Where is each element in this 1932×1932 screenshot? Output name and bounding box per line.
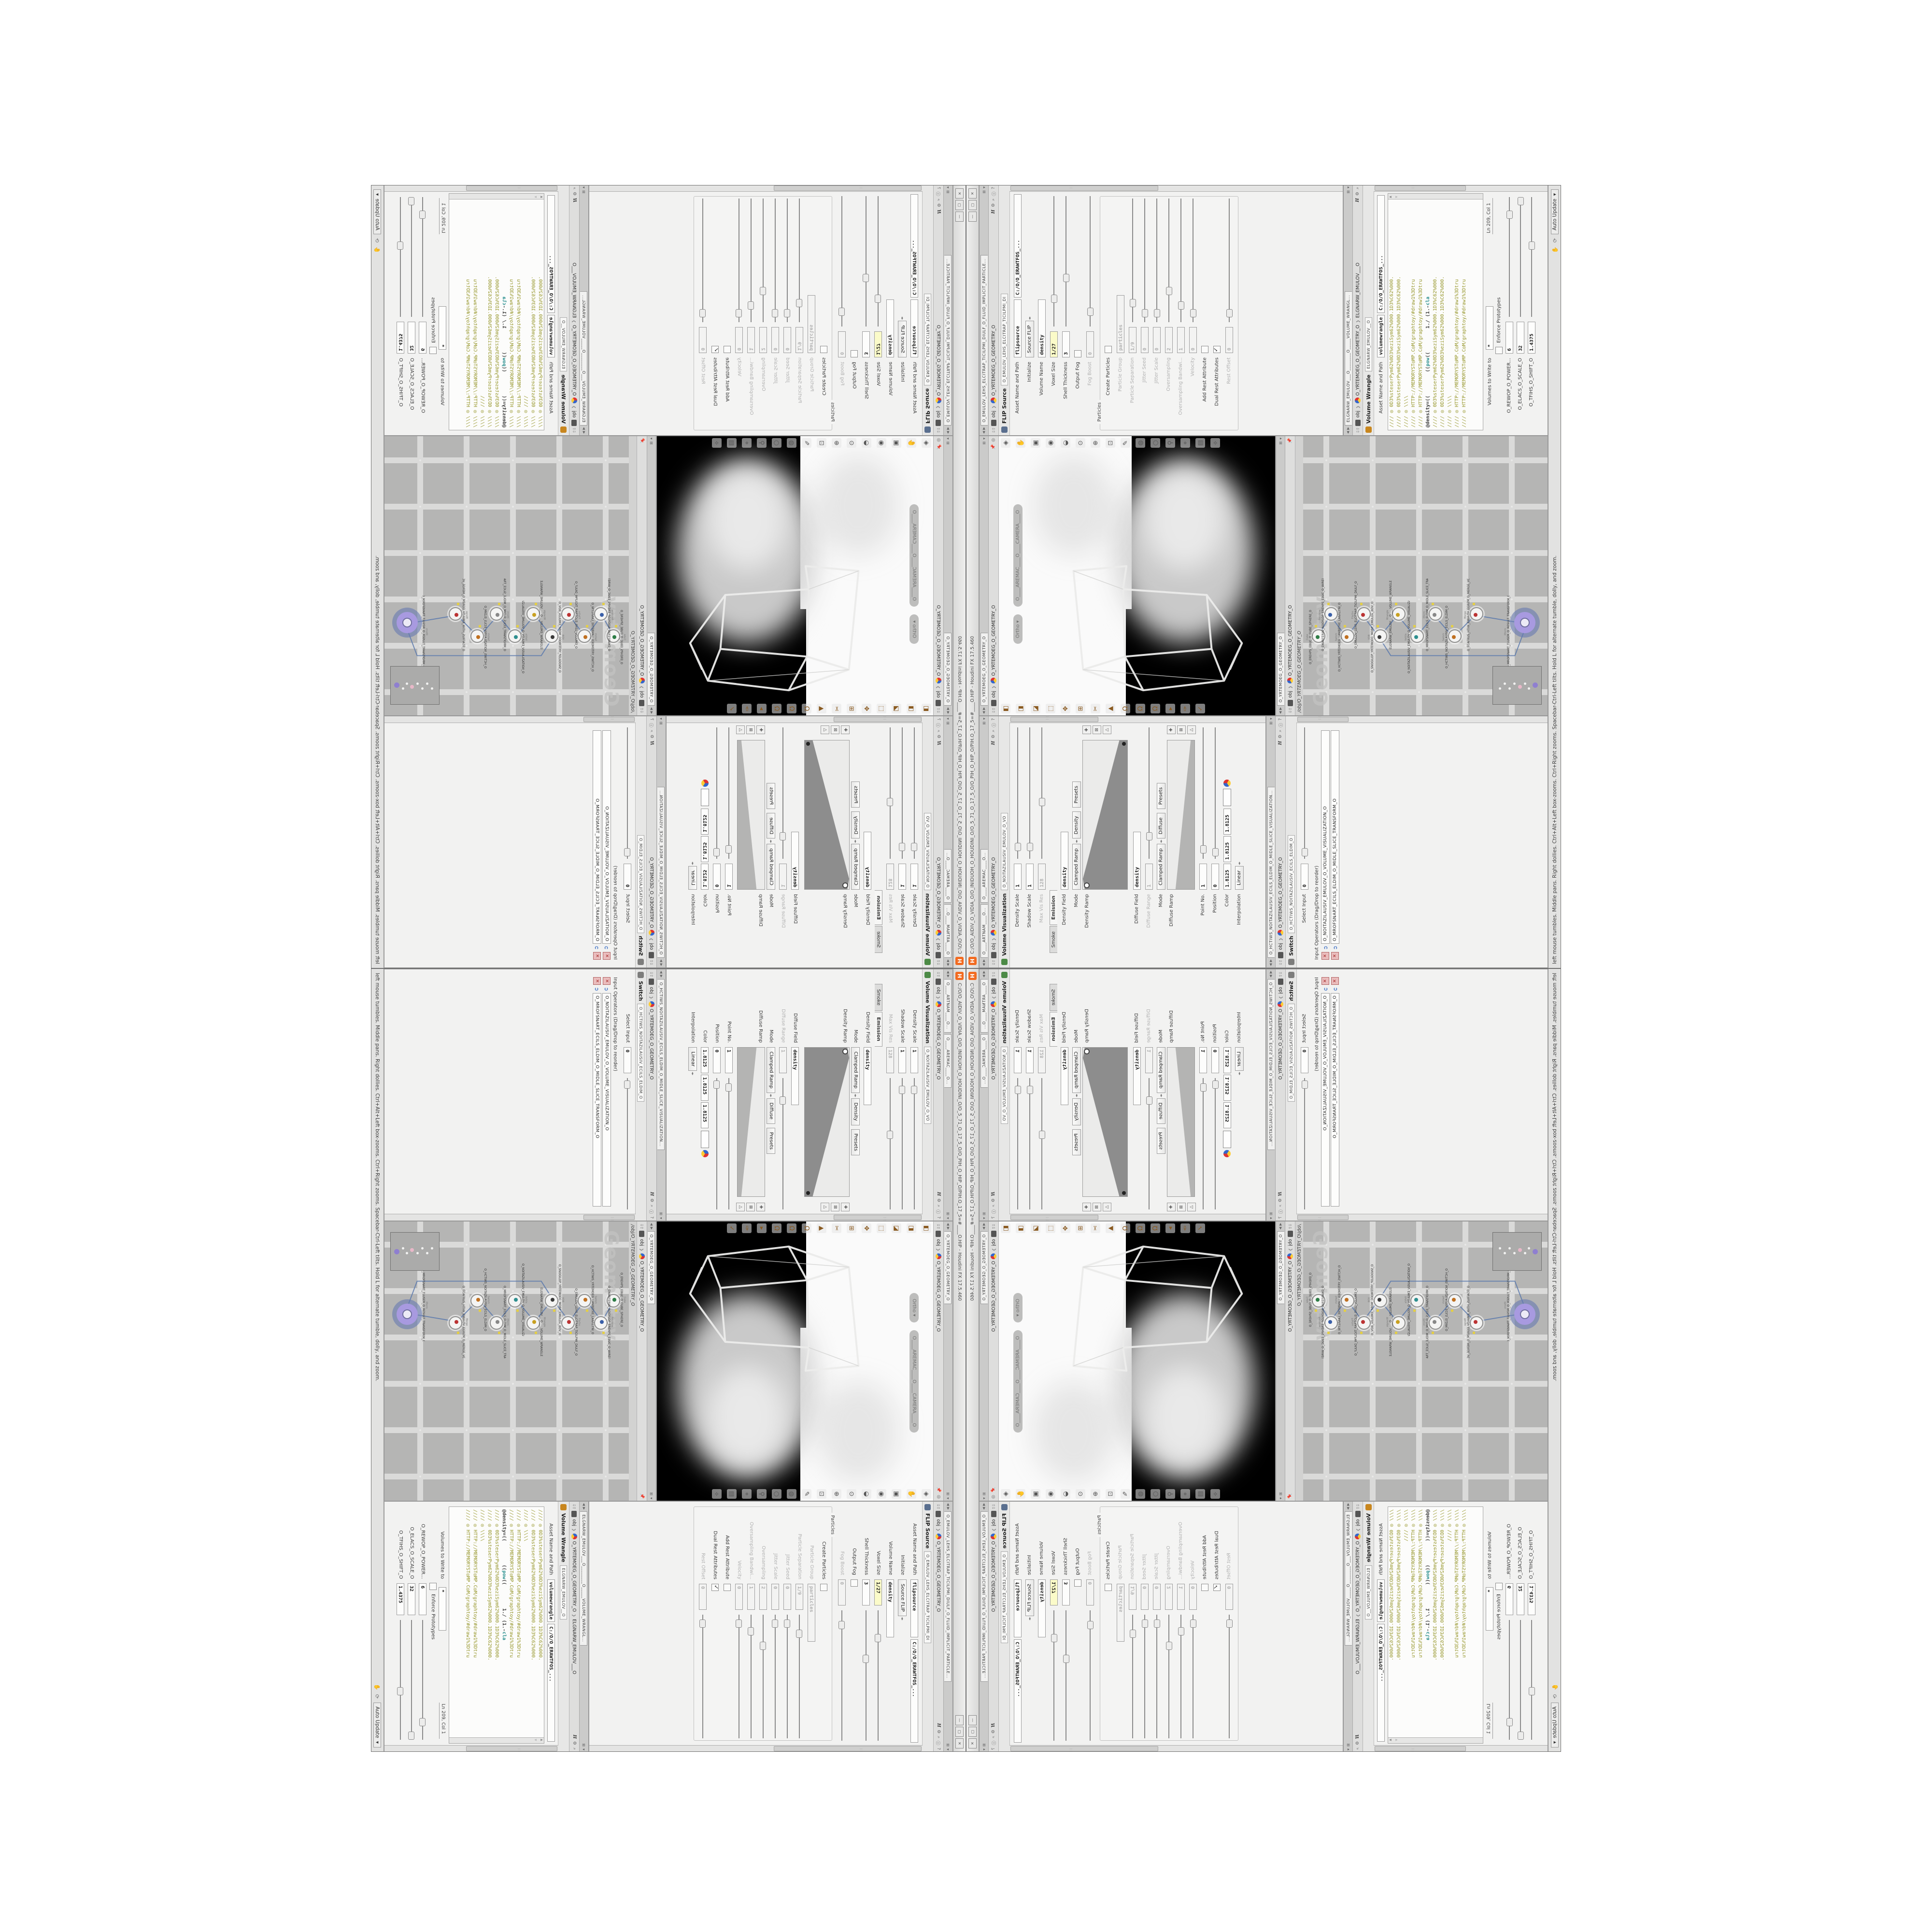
interpolation-dropdown[interactable]: Linear [1235, 866, 1244, 890]
nav-arrows-icon[interactable]: ⇩⇧ [1288, 708, 1293, 713]
pane-split-icon[interactable]: ⊞ [659, 1212, 664, 1215]
clip-icon[interactable]: ✂ [1091, 704, 1100, 713]
particle-separation-field[interactable]: 1/9 [796, 1584, 804, 1610]
pose-icon[interactable]: ⟡ [1210, 438, 1220, 448]
max-vis-res-slider[interactable] [1038, 727, 1045, 859]
node-name-tab[interactable]: O_EMULOV_LEHS_ELCITRAP_TICILPMI_DI [1001, 1551, 1008, 1643]
node-result-transform-display[interactable] [1510, 1299, 1540, 1329]
grid-icon[interactable]: ⊞ [847, 704, 856, 713]
shell-thickness-slider[interactable] [1063, 1610, 1069, 1741]
nav-arrows-icon[interactable]: ⇩⇧ [572, 428, 577, 433]
node-vdb-from-polygons[interactable] [545, 1294, 558, 1307]
minimize-button[interactable]: — [955, 1715, 964, 1725]
snapshot-icon[interactable]: ◍ [1136, 438, 1145, 448]
node-slice-transform[interactable] [1429, 607, 1442, 621]
info-icon[interactable]: ⓘ [991, 723, 997, 727]
network-path-field[interactable]: /obj/O_YRTEMOEG_O_GEOMETRY_O [628, 1222, 637, 1501]
point-no-slider[interactable] [726, 727, 733, 859]
pane-split-icon[interactable]: ⊞ [982, 1743, 986, 1747]
pane-menu-icon[interactable]: ▾ [1279, 438, 1283, 440]
pane-menu-icon[interactable]: ▾ [982, 1497, 986, 1499]
oversampling-bandwidth-field[interactable]: 1 [1177, 327, 1185, 353]
pane-tab-network[interactable]: O_YRTEMOEG_O_GEOMETRY_O [1277, 1231, 1284, 1304]
play-icon[interactable]: ▸ [1165, 704, 1175, 713]
node-name-tab[interactable]: ELGNARW_EMULOV__O [560, 1565, 568, 1620]
wireframe-icon[interactable]: ◪ [892, 1223, 901, 1233]
diffuse-mode-dropdown[interactable]: Clamped Ramp [1157, 1047, 1165, 1093]
annotate-icon[interactable]: ✎ [802, 1489, 811, 1499]
pane-tab-flip-source[interactable]: O_EMULOV_LEHS_ELCITRAP_TICILPMI_DIULF_O_… [945, 255, 952, 426]
dot-icon[interactable]: ○ [1151, 438, 1160, 448]
pane-split-icon[interactable]: ⊞ [946, 1212, 951, 1215]
rest-offset-field[interactable]: 0 [699, 327, 707, 353]
shade-icon[interactable]: ◒ [862, 1489, 871, 1499]
pin-icon[interactable]: 📌 [1288, 438, 1293, 443]
diffuse-ramp-widget[interactable] [1167, 1047, 1195, 1197]
flatten-ramp-icon[interactable]: △ [1187, 1203, 1196, 1211]
oversampling-slider[interactable] [760, 1615, 767, 1738]
nav-arrows-icon[interactable]: ⇩⇧ [992, 428, 996, 433]
code-scrollbar[interactable] [1388, 194, 1483, 199]
ortho-camera-pill[interactable]: Ortho ▾ [1013, 614, 1023, 644]
jitter-seed-field[interactable]: 0 [784, 327, 792, 353]
enforce-prototypes-checkbox[interactable] [429, 347, 437, 354]
node-name-tab[interactable]: O_HCTIWS_NOITAZILAUSIV_ECILS_ELDIM_O [638, 835, 645, 933]
breadcrumb-ctx[interactable]: obj [649, 987, 654, 994]
search-icon[interactable]: ⌕ [1355, 187, 1360, 189]
magnet-prim-icon[interactable]: Ω [1151, 704, 1160, 713]
network-canvas[interactable]: Geometry CubeO_EREHPS_EBUC_O_CUBE_SPHERE… [1303, 436, 1548, 715]
ramp-channel-dropdown[interactable]: Density [852, 1098, 860, 1125]
breadcrumb-ctx[interactable]: obj [991, 987, 996, 994]
nav-arrows-icon[interactable]: ⇩⇧ [937, 1223, 941, 1229]
pane-menu-icon[interactable]: ▾ [1269, 718, 1273, 720]
pane-scrollbar[interactable] [667, 716, 923, 723]
stepper-icon[interactable]: ◂▸ [1159, 839, 1163, 843]
view-tool-icon[interactable]: ◈ [922, 438, 931, 448]
tab-scroll-right-icon[interactable]: ▶ [1269, 975, 1273, 977]
help-icon[interactable]: ? [1278, 718, 1283, 721]
tab-scroll-right-icon[interactable]: ▶ [1279, 707, 1282, 710]
nav-arrows-icon[interactable]: ⇩⇧ [937, 708, 941, 713]
velocity-field[interactable]: 0 [736, 1584, 743, 1610]
comb-icon[interactable]: ✓ [1195, 1223, 1205, 1233]
shadow-scale-slider[interactable] [899, 1078, 906, 1209]
density-ramp-widget[interactable] [1082, 1047, 1128, 1197]
tab-scroll-right-icon[interactable]: ▶ [982, 1227, 986, 1229]
viewport-canvas[interactable]: Ortho ▾ O____AREMAC____O____CAMERA____O … [657, 436, 933, 715]
nav-arrows-icon[interactable]: ⇩⇧ [1356, 428, 1360, 433]
density-scale-slider[interactable] [911, 727, 918, 859]
select-input-slider[interactable] [625, 727, 631, 859]
vex-snippet-editor[interactable]: //// ◎ 0D3%steserPym62%0D3%eziSym62%000.… [1388, 193, 1483, 430]
rest-offset-slider[interactable] [1226, 1615, 1233, 1738]
remove-operator-button[interactable]: ✕ [603, 952, 611, 960]
axis-icon[interactable]: ▲ [1106, 704, 1115, 713]
grid-icon[interactable]: ⊞ [847, 1223, 856, 1233]
presets-button[interactable]: Presets [852, 1129, 860, 1155]
pane-scrollbar[interactable] [1009, 1745, 1343, 1752]
tab-scroll-right-icon[interactable]: ▶ [946, 707, 950, 710]
node-volume-visualization[interactable] [1410, 629, 1424, 643]
density-scale-slider[interactable] [1014, 1078, 1021, 1209]
initialize-dropdown[interactable]: Source FLIP [898, 321, 907, 357]
breadcrumb-ctx[interactable]: obj [639, 691, 645, 697]
density-scale-slider[interactable] [911, 1078, 918, 1209]
power-slider[interactable] [1506, 1620, 1513, 1740]
shift-field[interactable]: 1.4375 [1528, 1583, 1535, 1615]
target-icon[interactable]: ⌖ [742, 438, 752, 448]
volumes-to-write-field[interactable]: * [1486, 306, 1493, 350]
diffuse-range-slider[interactable] [1146, 1078, 1152, 1209]
tab-scroll-right-icon[interactable]: ▶ [1346, 427, 1350, 429]
auto-update-selector[interactable]: Auto Update ▾ [1551, 189, 1559, 234]
gear-icon[interactable]: ⚙ [991, 735, 996, 739]
info-icon[interactable]: ⓘ [1278, 723, 1284, 727]
power-field[interactable]: 6 [419, 322, 427, 354]
pane-tab-camera[interactable]: O____AREMAC____O... [980, 1034, 988, 1088]
operator-path-field[interactable]: O_NOITAZILAUSIV_EMULOV_O_VOLUME_VISUALIZ… [602, 993, 611, 1207]
breadcrumb-geometry[interactable]: O_YRTEMOEG_O_GEOMETRY_O [936, 605, 941, 676]
diffuse-mode-dropdown[interactable]: Clamped Ramp [767, 1047, 776, 1093]
search-icon[interactable]: ⌕ [936, 730, 941, 732]
gear-icon[interactable]: ⚙ [1278, 735, 1283, 739]
tab-scroll-left-icon[interactable]: ◀ [659, 964, 663, 966]
density-ramp-widget[interactable] [804, 1047, 850, 1197]
viewport-canvas[interactable]: Ortho ▾ O____AREMAC____O____CAMERA____O … [999, 436, 1275, 715]
tab-scroll-left-icon[interactable]: ◀ [946, 1503, 950, 1506]
initialize-dropdown[interactable]: Source FLIP [1025, 1579, 1034, 1616]
vex-snippet-editor[interactable]: //// ◎ 0D3%steserPym62%0D3%eziSym62%000.… [449, 1506, 544, 1744]
frame-icon[interactable]: ▣ [892, 438, 901, 448]
target-icon[interactable]: ⌖ [742, 1489, 752, 1499]
rest-offset-slider[interactable] [1226, 199, 1233, 322]
breadcrumb-ctx[interactable]: obj [1278, 987, 1283, 994]
construction-plane-icon[interactable]: ⬚ [877, 704, 886, 713]
asset-path-field[interactable]: C:/O/O_ERAWTFOS_... [911, 194, 919, 298]
gear-icon[interactable]: ⚙ [991, 1730, 996, 1733]
max-vis-res-slider[interactable] [1038, 1078, 1045, 1209]
shift-slider[interactable] [1528, 197, 1535, 317]
auto-update-selector[interactable]: Auto Update ▾ [373, 1703, 381, 1747]
minimize-button[interactable]: — [968, 212, 977, 222]
pane-tab-flip-source[interactable]: O_EMULOV_LEHS_ELCITRAP_TICILPMI_DIULF_O_… [980, 255, 988, 426]
gear-icon[interactable]: ⚙ [991, 1198, 996, 1202]
node-name-tab[interactable]: O_HCTIWS_NOITAZILAUSIV_ECILS_ELDIM_O [1288, 835, 1295, 933]
node-slice-transform[interactable] [1429, 1316, 1442, 1330]
gear-icon[interactable]: ⚙ [936, 1730, 941, 1733]
jitter-seed-field[interactable]: 0 [784, 1584, 792, 1610]
network-canvas[interactable]: Geometry CubeO_EREHPS_EBUC_O_CUBE_SPHERE… [384, 1222, 629, 1501]
voxel-size-field[interactable]: 1/27 [1050, 331, 1058, 357]
pane-split-icon[interactable]: ⊞ [1346, 190, 1350, 194]
ramp-channel-dropdown[interactable]: Density [1072, 1098, 1081, 1125]
flatten-ramp-icon[interactable]: △ [736, 1203, 745, 1211]
snapshot-icon[interactable]: ◍ [1136, 1489, 1145, 1499]
info-icon[interactable]: ⓘ [991, 192, 997, 196]
search-icon[interactable]: ⌕ [649, 730, 654, 732]
tab-scroll-left-icon[interactable]: ◀ [982, 964, 986, 966]
tab-scroll-right-icon[interactable]: ▶ [946, 1227, 950, 1229]
velocity-slider[interactable] [1190, 1615, 1196, 1738]
breadcrumb-ctx[interactable]: obj [572, 411, 577, 417]
nav-arrows-icon[interactable]: ⇩⇧ [937, 1504, 941, 1509]
add-rest-checkbox[interactable] [724, 1584, 731, 1591]
move-icon[interactable]: ✥ [1061, 704, 1070, 713]
node-name-tab[interactable]: O_HCTIWS_NOITAZILAUSIV_ECILS_ELDIM_O [1288, 1004, 1295, 1102]
camera-menu-pill[interactable]: O____AREMAC____O____CAMERA____O [1013, 504, 1023, 607]
pane-menu-icon[interactable]: ▾ [582, 1748, 586, 1750]
oversampling-bandwidth-slider[interactable] [1178, 199, 1184, 322]
diffuse-range-slider[interactable] [780, 727, 787, 859]
max-vis-res-field[interactable]: 128 [887, 864, 895, 890]
pane-split-icon[interactable]: ⊞ [946, 441, 951, 445]
fog-boost-slider[interactable] [1087, 196, 1094, 327]
gear-icon[interactable]: ⚙ [936, 735, 941, 739]
insert-operator-icon[interactable]: ➲ [604, 987, 610, 991]
color-g-field[interactable]: 1.8125 [1223, 836, 1231, 862]
color-r-field[interactable]: 1.8125 [701, 864, 709, 890]
add-point-icon[interactable]: ✚ [1167, 725, 1176, 734]
pane-tab-scene-view[interactable]: O_YRTEMOEG_O_GEOMETRY_O [980, 1231, 988, 1304]
stepper-icon[interactable]: ◂▸ [1237, 1072, 1241, 1075]
shade-icon[interactable]: ◒ [862, 438, 871, 448]
add-point-icon[interactable]: ✚ [841, 725, 850, 734]
breadcrumb-wrangle-node[interactable]: ELGNARW_EMULOV___O [572, 263, 577, 318]
maximize-button[interactable]: ▢ [968, 1727, 977, 1737]
diffuse-range-slider[interactable] [780, 1078, 787, 1209]
breadcrumb-geometry[interactable]: O_YRTEMOEG_O_GEOMETRY_O [572, 325, 577, 396]
magnet-point-icon[interactable]: Ω [1136, 1223, 1145, 1233]
node-name-tab[interactable]: O_HCTIWS_NOITAZILAUSIV_ECILS_ELDIM_O [638, 1004, 645, 1102]
ortho-camera-pill[interactable]: Ortho ▾ [909, 614, 919, 644]
magnet-grid-icon[interactable]: Ω [1121, 1223, 1130, 1233]
create-particles-checkbox[interactable] [1105, 1584, 1112, 1591]
pane-tab-network[interactable]: O_YRTEMOEG_O_GEOMETRY_O [1277, 633, 1284, 706]
diffuse-presets-button[interactable]: Presets [767, 1128, 776, 1154]
color-wheel-icon[interactable] [701, 780, 709, 787]
fog-boost-field[interactable]: 0 [1086, 331, 1094, 357]
flatten-ramp-icon[interactable]: △ [821, 725, 829, 734]
operator-path-field[interactable]: O_NOITAZILAUSIV_EMULOV_O_VOLUME_VISUALIZ… [1321, 993, 1330, 1207]
operator-path-field[interactable]: O_MROFSNART_ECILS_ELDIM_O_MIDLE_SLICE_TR… [593, 993, 601, 1207]
jitter-scale-field[interactable]: 0 [772, 327, 780, 353]
info-icon[interactable]: ⓘ [936, 1741, 942, 1745]
tab-scroll-left-icon[interactable]: ◀ [946, 1223, 950, 1225]
fog-boost-slider[interactable] [839, 196, 846, 327]
tab-scroll-right-icon[interactable]: ▶ [1269, 959, 1273, 962]
shaded-icon[interactable]: ◨ [907, 1223, 916, 1233]
pane-scrollbar[interactable] [384, 1745, 558, 1752]
velocity-slider[interactable] [736, 1615, 743, 1738]
fog-boost-slider[interactable] [1087, 1610, 1094, 1741]
nav-arrows-icon[interactable]: ⇩⇧ [650, 971, 654, 977]
stepper-icon[interactable]: ◂▸ [1075, 839, 1079, 843]
max-vis-res-field[interactable]: 128 [1038, 1047, 1046, 1073]
pane-tab-switch[interactable]: O_HCTIWS_NOITAZILAUSIV_ECILS_ELDIM_O_MID… [1267, 979, 1275, 1150]
oversampling-field[interactable]: 2 [760, 327, 767, 353]
tab-scroll-left-icon[interactable]: ◀ [946, 711, 950, 714]
pane-scrollbar[interactable] [667, 1214, 923, 1221]
color-r-field[interactable]: 1.8125 [1223, 1047, 1231, 1073]
node-volume-visualization[interactable] [508, 629, 522, 643]
diffuse-channel-dropdown[interactable]: Diffuse [767, 813, 776, 838]
network-path-field[interactable]: /obj/O_YRTEMOEG_O_GEOMETRY_O [1295, 436, 1304, 715]
pivot-icon[interactable]: ◉ [1046, 438, 1055, 448]
tab-scroll-left-icon[interactable]: ◀ [982, 971, 986, 973]
color-swatch[interactable] [701, 1131, 709, 1148]
tab-scroll-right-icon[interactable]: ▶ [982, 707, 986, 710]
diffuse-presets-button[interactable]: Presets [1157, 1128, 1165, 1154]
pane-split-icon[interactable]: ⊞ [650, 441, 654, 445]
color-wheel-icon[interactable] [701, 1150, 709, 1157]
add-rest-checkbox[interactable] [1201, 346, 1208, 353]
network-minimap[interactable] [1492, 666, 1542, 705]
tab-smoke[interactable]: Smoke [875, 984, 882, 1011]
point-no-field[interactable]: 1 [1199, 864, 1207, 890]
sync-icon[interactable]: ⟳ [1552, 238, 1558, 242]
pane-tab-flip-source[interactable]: O_EMULOV_LEHS_ELCITRAP_TICILPMI_DIULF_O_… [980, 1511, 988, 1682]
move-icon[interactable]: ✥ [862, 704, 871, 713]
oversampling-field[interactable]: 2 [1165, 327, 1173, 353]
comb-icon[interactable]: ✓ [727, 704, 737, 713]
shell-thickness-slider[interactable] [863, 196, 870, 327]
info-icon[interactable]: ⓘ [991, 1209, 997, 1214]
particle-separation-slider[interactable] [796, 1615, 803, 1738]
stepper-icon[interactable]: ◂▸ [854, 1094, 858, 1097]
operator-path-field[interactable]: O_MROFSNART_ECILS_ELDIM_O_MIDLE_SLICE_TR… [1331, 730, 1339, 944]
scale-field[interactable]: 32 [1517, 1583, 1524, 1615]
breadcrumb-geometry[interactable]: O_YRTEMOEG_O_GEOMETRY_O [936, 325, 941, 396]
insert-operator-icon[interactable]: ➲ [594, 946, 600, 950]
gear-icon[interactable]: ⚙ [936, 1198, 941, 1202]
asset-path-field[interactable]: C:/O/O_ERAWTFOS_... [1014, 194, 1022, 298]
oversampling-bandwidth-slider[interactable] [748, 1615, 755, 1738]
box-zoom-icon[interactable]: ⊡ [1106, 1489, 1115, 1499]
volumes-to-write-field[interactable]: * [439, 1587, 446, 1631]
node-merge[interactable] [1470, 607, 1483, 621]
diffuse-presets-button[interactable]: Presets [1157, 783, 1165, 809]
presets-button[interactable]: Presets [1072, 1129, 1081, 1155]
comb-icon[interactable]: ✓ [727, 1223, 737, 1233]
point-no-slider[interactable] [1200, 1078, 1207, 1209]
oversampling-slider[interactable] [760, 199, 767, 322]
pane-tab-network[interactable]: O_YRTEMOEG_O_GEOMETRY_O [648, 633, 655, 706]
pane-scrollbar[interactable] [1296, 716, 1548, 723]
dual-rest-checkbox[interactable] [711, 1584, 719, 1591]
create-particles-checkbox[interactable] [820, 1584, 827, 1591]
position-field[interactable]: 0 [1211, 864, 1219, 890]
breadcrumb-geometry[interactable]: O_YRTEMOEG_O_GEOMETRY_O [1355, 325, 1361, 396]
network-minimap[interactable] [390, 666, 440, 705]
node-volume-wrangle[interactable] [1392, 1316, 1406, 1330]
pane-tab-volume-wrangle[interactable]: ELGNARW_EMULOV___O________O_____VOLUME_W… [1345, 1511, 1352, 1646]
nav-arrows-icon[interactable]: ⇩⇧ [937, 971, 941, 977]
color-wheel-icon[interactable] [1223, 780, 1231, 787]
point-no-slider[interactable] [726, 1078, 733, 1209]
node-name-tab[interactable]: O_NOITAZILAUSIV_EMULOV_O_VO [1001, 1047, 1008, 1124]
hand-icon[interactable]: ✋ [1552, 1684, 1558, 1690]
node-name-tab[interactable]: O_NOITAZILAUSIV_EMULOV_O_VO [924, 1047, 932, 1124]
ramp-channel-dropdown[interactable]: Density [1072, 811, 1081, 838]
dot-icon[interactable]: ○ [772, 438, 781, 448]
diffuse-field-input[interactable]: density [1133, 1047, 1141, 1105]
network-minimap[interactable] [390, 1232, 440, 1271]
nav-arrows-icon[interactable]: ⇩⇧ [1279, 971, 1283, 977]
oversampling-field[interactable]: 2 [760, 1584, 767, 1610]
tab-scroll-right-icon[interactable]: ▶ [1346, 1507, 1350, 1509]
nav-arrows-icon[interactable]: ⇩⇧ [992, 708, 996, 713]
volume-name-field[interactable]: density [1038, 299, 1046, 357]
add-point-icon[interactable]: ✚ [841, 1203, 850, 1211]
pane-split-icon[interactable]: ⊞ [582, 1743, 586, 1747]
jitter-scale-slider[interactable] [1153, 1615, 1160, 1738]
pane-scrollbar[interactable] [1009, 716, 1265, 723]
hand-icon[interactable]: ✋ [1552, 246, 1558, 253]
tab-scroll-left-icon[interactable]: ◀ [946, 431, 950, 434]
diffuse-channel-dropdown[interactable]: Diffuse [1157, 1098, 1165, 1124]
layout-icon[interactable]: ▤ [727, 1489, 737, 1499]
breadcrumb-geometry[interactable]: O_YRTEMOEG_O_GEOMETRY_O [991, 857, 996, 928]
node-visualization-switch[interactable] [1448, 629, 1462, 643]
pane-tab-scene-view[interactable]: O_YRTEMOEG_O_GEOMETRY_O [945, 1231, 952, 1304]
axis-icon[interactable]: ▲ [1106, 1223, 1115, 1233]
zoom-icon[interactable]: ⊕ [832, 438, 841, 448]
node-name-tab[interactable]: ELGNARW_EMULOV__O [1365, 1565, 1372, 1620]
zoom-icon[interactable]: ⊕ [1091, 438, 1100, 448]
stepper-icon[interactable]: ◂▸ [901, 316, 905, 320]
tab-scroll-left-icon[interactable]: ◀ [982, 1503, 986, 1506]
create-particles-checkbox[interactable] [1105, 346, 1112, 353]
rest-offset-field[interactable]: 0 [1225, 1584, 1233, 1610]
nav-arrows-icon[interactable]: ⇩⇧ [1279, 960, 1283, 966]
layout-icon[interactable]: ▤ [727, 438, 737, 448]
pane-menu-icon[interactable]: ▾ [1269, 1217, 1273, 1219]
breadcrumb-ctx[interactable]: obj [936, 943, 941, 950]
density-field-input[interactable]: density [1061, 1047, 1068, 1105]
oversampling-bandwidth-field[interactable]: 1 [748, 327, 755, 353]
construction-plane-icon[interactable]: ⬚ [1046, 1223, 1055, 1233]
node-name-tab[interactable]: ELGNARW_EMULOV__O [560, 317, 568, 372]
point-no-field[interactable]: 1 [1199, 1047, 1207, 1073]
info-icon[interactable]: ⓘ [649, 723, 655, 727]
power-slider[interactable] [420, 1620, 426, 1740]
box-zoom-icon[interactable]: ⊡ [1106, 438, 1115, 448]
frame-icon[interactable]: ▣ [1031, 438, 1040, 448]
point-no-field[interactable]: 1 [725, 1047, 733, 1073]
zoom-icon[interactable]: ⊕ [1091, 1489, 1100, 1499]
delete-point-icon[interactable]: ⊠ [1177, 725, 1186, 734]
node-name-tab[interactable]: ELGNARW_EMULOV__O [1365, 317, 1372, 372]
target-icon[interactable]: ⌖ [1180, 438, 1190, 448]
target-icon[interactable]: ◎ [991, 438, 996, 442]
node-slice-transform[interactable] [490, 1316, 503, 1330]
hand-icon[interactable]: ✋ [374, 246, 381, 253]
tab-scroll-right-icon[interactable]: ▶ [1279, 1227, 1282, 1229]
pane-split-icon[interactable]: ⊞ [1279, 441, 1283, 445]
pane-tab-volume-wrangle[interactable]: ELGNARW_EMULOV___O________O_____VOLUME_W… [581, 1511, 588, 1646]
pane-split-icon[interactable]: ⊞ [1269, 722, 1273, 725]
pane-scrollbar[interactable] [1296, 1214, 1548, 1221]
vex-snippet-editor[interactable]: //// ◎ 0D3%steserPym62%0D3%eziSym62%000.… [1388, 1506, 1483, 1744]
add-point-icon[interactable]: ✚ [1082, 725, 1091, 734]
position-slider[interactable] [714, 1078, 721, 1209]
axis-icon[interactable]: ▲ [817, 704, 826, 713]
density-field-input[interactable]: density [864, 832, 872, 890]
sync-icon[interactable]: ⟳ [374, 1694, 381, 1699]
breadcrumb-wrangle-node[interactable]: ELGNARW_EMULOV___O [1355, 263, 1361, 318]
info-icon[interactable]: ⓘ [936, 723, 942, 727]
